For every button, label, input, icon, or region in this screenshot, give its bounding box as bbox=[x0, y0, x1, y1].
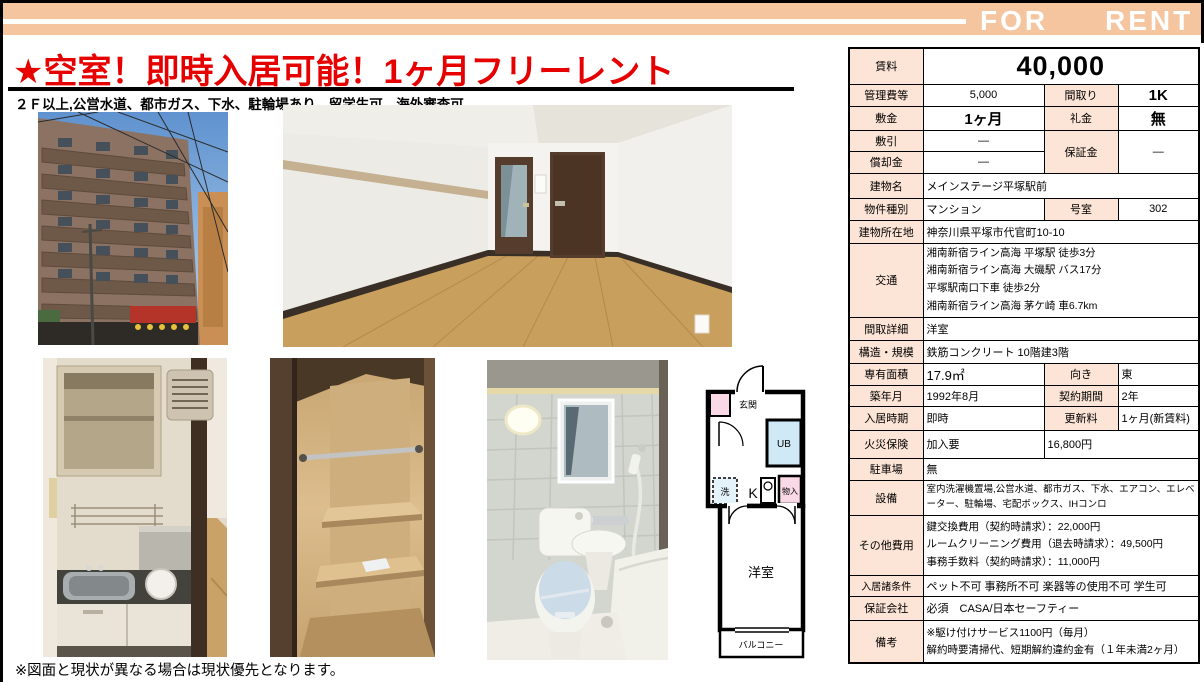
table-row: 建物名 メインステージ平塚駅前 bbox=[849, 173, 1199, 198]
key-money-label: 礼金 bbox=[1044, 106, 1118, 130]
layout-detail-value: 洋室 bbox=[923, 317, 1199, 340]
security-deposit-label: 保証金 bbox=[1044, 130, 1118, 173]
shikibiki-label: 敷引 bbox=[849, 130, 923, 151]
photo-kitchen bbox=[43, 358, 227, 657]
equipment-label: 設備 bbox=[849, 480, 923, 515]
plan-label-wash: 洗 bbox=[720, 486, 729, 497]
banner-white-stripe bbox=[3, 19, 966, 24]
area-value: 17.9㎡ bbox=[923, 363, 1044, 385]
photo-closet bbox=[270, 358, 435, 657]
parking-value: 無 bbox=[923, 458, 1199, 480]
property-type-label: 物件種別 bbox=[849, 198, 923, 220]
amortization-value: — bbox=[923, 151, 1044, 173]
photo-room-interior bbox=[283, 105, 732, 347]
room-number-label: 号室 bbox=[1044, 198, 1118, 220]
renewal-fee-label: 更新料 bbox=[1044, 406, 1118, 430]
page-title: ★空室！即時入居可能！1ヶ月フリーレント bbox=[13, 44, 674, 93]
move-in-value: 即時 bbox=[923, 406, 1044, 430]
notes-value: ※駆け付けサービス1100円（毎月） 解約時要清掃代、短期解約違約金有（１年未満… bbox=[923, 620, 1199, 663]
table-row: 物件種別 マンション 号室 302 bbox=[849, 198, 1199, 220]
amortization-label: 償却金 bbox=[849, 151, 923, 173]
room-number-value: 302 bbox=[1118, 198, 1199, 220]
deposit-label: 敷金 bbox=[849, 106, 923, 130]
table-row: 設備 室内洗濯機置場,公営水道、都市ガス、下水、エアコン、エレベーター、駐輪場、… bbox=[849, 480, 1199, 515]
access-value: 湘南新宿ライン高海 平塚駅 徒歩3分 湘南新宿ライン高海 大磯駅 バス17分 平… bbox=[923, 243, 1199, 317]
disclaimer-note: ※図面と現状が異なる場合は現状優先となります。 bbox=[15, 659, 344, 680]
table-row: 建物所在地 神奈川県平塚市代官町10-10 bbox=[849, 220, 1199, 243]
contract-value: 2年 bbox=[1118, 385, 1199, 406]
table-row: 敷引 — 保証金 — bbox=[849, 130, 1199, 151]
plan-label-room: 洋室 bbox=[748, 565, 774, 580]
building-name-label: 建物名 bbox=[849, 173, 923, 198]
table-row: 管理費等 5,000 間取り 1K bbox=[849, 84, 1199, 106]
other-fees-value: 鍵交換費用（契約時請求）：22,000円 ルームクリーニング費用（退去時請求）：… bbox=[923, 515, 1199, 575]
for-rent-banner: FOR RENT bbox=[3, 3, 1201, 35]
equipment-value: 室内洗濯機置場,公営水道、都市ガス、下水、エアコン、エレベーター、駐輪場、宅配ボ… bbox=[923, 480, 1199, 515]
mgmt-fee-label: 管理費等 bbox=[849, 84, 923, 106]
conditions-value: ペット不可 事務所不可 楽器等の使用不可 学生可 bbox=[923, 575, 1199, 596]
built-value: 1992年8月 bbox=[923, 385, 1044, 406]
photo-bathroom bbox=[487, 360, 668, 660]
rental-flyer-page: FOR RENT ★空室！即時入居可能！1ヶ月フリーレント ２Ｆ以上,公営水道、… bbox=[0, 0, 1204, 682]
table-row: 間取詳細 洋室 bbox=[849, 317, 1199, 340]
floor-plan: 玄関 UB 洗 K 物入 洋室 バルコニー bbox=[685, 358, 838, 660]
address-value: 神奈川県平塚市代官町10-10 bbox=[923, 220, 1199, 243]
fire-insurance-value: 加入要 bbox=[923, 430, 1044, 458]
layout-value: 1K bbox=[1118, 84, 1199, 106]
built-label: 築年月 bbox=[849, 385, 923, 406]
table-row: 敷金 1ヶ月 礼金 無 bbox=[849, 106, 1199, 130]
fire-insurance-label: 火災保険 bbox=[849, 430, 923, 458]
table-row: その他費用 鍵交換費用（契約時請求）：22,000円 ルームクリーニング費用（退… bbox=[849, 515, 1199, 575]
plan-label-balcony: バルコニー bbox=[739, 640, 784, 650]
banner-for-text: FOR bbox=[980, 5, 1048, 37]
address-label: 建物所在地 bbox=[849, 220, 923, 243]
access-label: 交通 bbox=[849, 243, 923, 317]
table-row: 築年月 1992年8月 契約期間 2年 bbox=[849, 385, 1199, 406]
title-underline bbox=[8, 87, 794, 91]
move-in-label: 入居時期 bbox=[849, 406, 923, 430]
facing-value: 東 bbox=[1118, 363, 1199, 385]
table-row: 構造・規模 鉄筋コンクリート 10階建3階 bbox=[849, 340, 1199, 363]
structure-value: 鉄筋コンクリート 10階建3階 bbox=[923, 340, 1199, 363]
renewal-fee-value: 1ヶ月(新賃料) bbox=[1118, 406, 1199, 430]
area-label: 専有面積 bbox=[849, 363, 923, 385]
property-type-value: マンション bbox=[923, 198, 1044, 220]
plan-label-closet: 物入 bbox=[782, 486, 798, 496]
layout-detail-label: 間取詳細 bbox=[849, 317, 923, 340]
deposit-value: 1ヶ月 bbox=[923, 106, 1044, 130]
plan-label-kitchen: K bbox=[748, 485, 758, 501]
table-row: 賃料 40,000 bbox=[849, 48, 1199, 84]
parking-label: 駐車場 bbox=[849, 458, 923, 480]
layout-label: 間取り bbox=[1044, 84, 1118, 106]
key-money-value: 無 bbox=[1118, 106, 1199, 130]
photo-building-exterior bbox=[38, 112, 228, 345]
guarantor-value: 必須 CASA/日本セーフティー bbox=[923, 596, 1199, 620]
table-row: 備考 ※駆け付けサービス1100円（毎月） 解約時要清掃代、短期解約違約金有（１… bbox=[849, 620, 1199, 663]
shikibiki-value: — bbox=[923, 130, 1044, 151]
banner-rent-text: RENT bbox=[1105, 5, 1193, 37]
property-spec-table: 賃料 40,000 管理費等 5,000 間取り 1K 敷金 1ヶ月 礼金 無 … bbox=[848, 47, 1200, 664]
structure-label: 構造・規模 bbox=[849, 340, 923, 363]
table-row: 専有面積 17.9㎡ 向き 東 bbox=[849, 363, 1199, 385]
security-deposit-value: — bbox=[1118, 130, 1199, 173]
plan-label-genkan: 玄関 bbox=[739, 399, 757, 410]
contract-label: 契約期間 bbox=[1044, 385, 1118, 406]
conditions-label: 入居諸条件 bbox=[849, 575, 923, 596]
facing-label: 向き bbox=[1044, 363, 1118, 385]
building-name-value: メインステージ平塚駅前 bbox=[923, 173, 1199, 198]
fire-insurance-cost: 16,800円 bbox=[1044, 430, 1199, 458]
mgmt-fee-value: 5,000 bbox=[923, 84, 1044, 106]
plan-label-ub: UB bbox=[777, 439, 791, 450]
guarantor-label: 保証会社 bbox=[849, 596, 923, 620]
notes-label: 備考 bbox=[849, 620, 923, 663]
rent-label: 賃料 bbox=[849, 48, 923, 84]
rent-value: 40,000 bbox=[923, 48, 1199, 84]
other-fees-label: その他費用 bbox=[849, 515, 923, 575]
table-row: 入居諸条件 ペット不可 事務所不可 楽器等の使用不可 学生可 bbox=[849, 575, 1199, 596]
table-row: 交通 湘南新宿ライン高海 平塚駅 徒歩3分 湘南新宿ライン高海 大磯駅 バス17… bbox=[849, 243, 1199, 317]
table-row: 保証会社 必須 CASA/日本セーフティー bbox=[849, 596, 1199, 620]
table-row: 火災保険 加入要 16,800円 bbox=[849, 430, 1199, 458]
table-row: 入居時期 即時 更新料 1ヶ月(新賃料) bbox=[849, 406, 1199, 430]
table-row: 駐車場 無 bbox=[849, 458, 1199, 480]
